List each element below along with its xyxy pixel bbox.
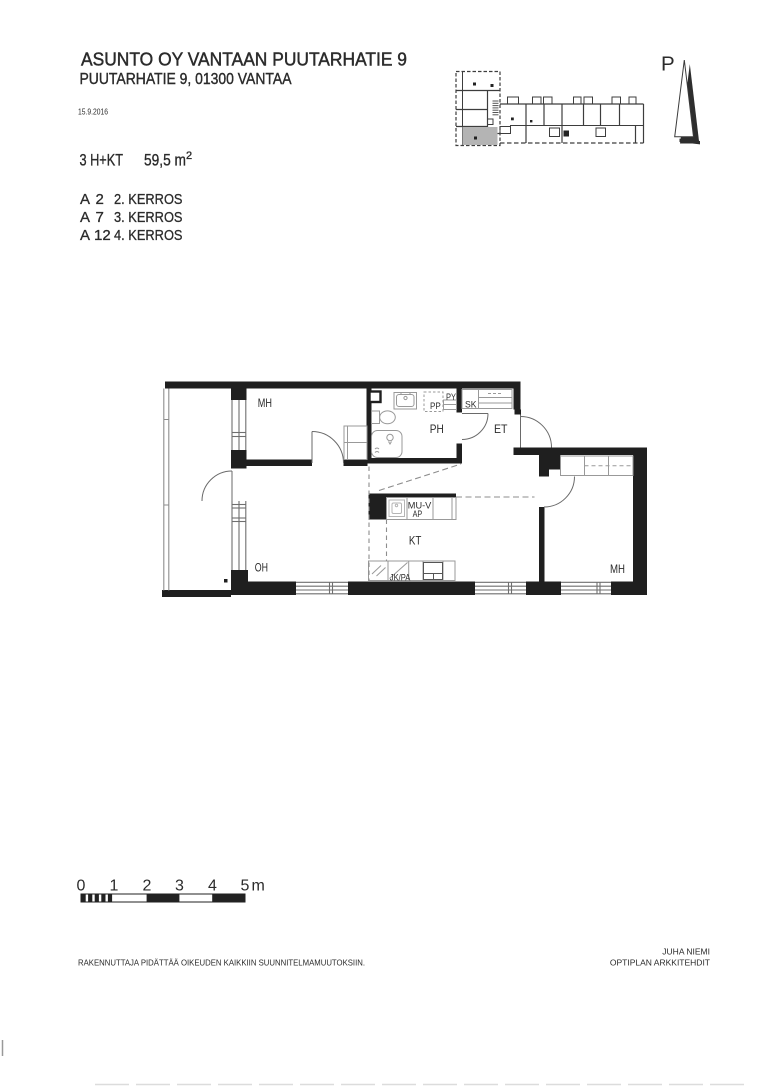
svg-text:ASUNTO OY VANTAAN PUUTARHATIE: ASUNTO OY VANTAAN PUUTARHATIE 9 bbox=[81, 49, 407, 70]
svg-text:012345m: 012345m bbox=[77, 878, 265, 895]
svg-text:JK/PA: JK/PA bbox=[390, 573, 411, 583]
svg-text:A124. KERROS: A124. KERROS bbox=[80, 227, 183, 244]
svg-text:OPTIPLAN ARKKITEHDIT: OPTIPLAN ARKKITEHDIT bbox=[610, 958, 710, 968]
svg-text:A73. KERROS: A73. KERROS bbox=[80, 209, 183, 226]
svg-text:A22. KERROS: A22. KERROS bbox=[80, 191, 183, 208]
svg-text:PH: PH bbox=[430, 422, 444, 436]
svg-text:PY: PY bbox=[446, 392, 456, 402]
svg-text:MH: MH bbox=[610, 562, 625, 576]
svg-text:RAKENNUTTAJA PIDÄTTÄÄ OIKEUDEN: RAKENNUTTAJA PIDÄTTÄÄ OIKEUDEN KAIKKIIN … bbox=[78, 958, 365, 968]
svg-text:3 H+KT: 3 H+KT bbox=[80, 151, 124, 170]
svg-text:SK: SK bbox=[465, 400, 477, 410]
svg-text:ET: ET bbox=[494, 422, 508, 436]
svg-text:P: P bbox=[661, 53, 675, 76]
svg-text:PP: PP bbox=[430, 401, 441, 411]
svg-text:OH: OH bbox=[255, 561, 268, 575]
svg-text:KT: KT bbox=[409, 533, 422, 547]
svg-text:JUHA NIEMI: JUHA NIEMI bbox=[662, 947, 710, 957]
svg-text:15.9.2016: 15.9.2016 bbox=[78, 107, 108, 117]
svg-text:59,5 m2: 59,5 m2 bbox=[144, 150, 192, 170]
svg-text:MH: MH bbox=[258, 396, 272, 410]
svg-text:PUUTARHATIE 9, 01300 VANTAA: PUUTARHATIE 9, 01300 VANTAA bbox=[80, 71, 292, 88]
svg-text:AP: AP bbox=[413, 509, 423, 520]
